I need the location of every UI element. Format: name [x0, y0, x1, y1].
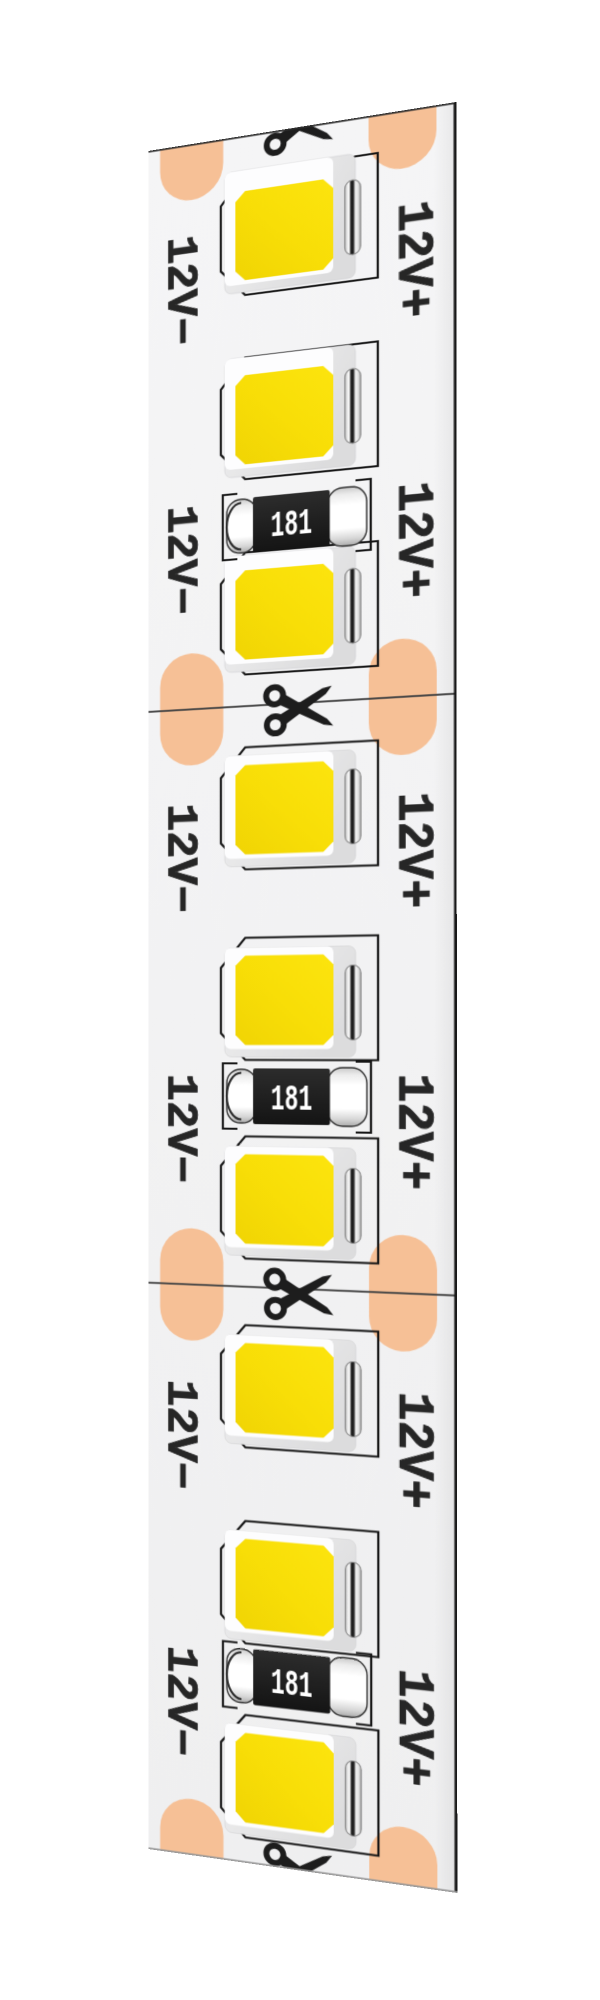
svg-text:181: 181 [271, 503, 312, 549]
svg-text:12V−: 12V− [155, 1074, 204, 1184]
svg-text:12V+: 12V+ [384, 1666, 442, 1789]
svg-text:12V+: 12V+ [384, 1073, 442, 1190]
svg-text:12V−: 12V− [155, 233, 204, 349]
svg-text:181: 181 [271, 1079, 313, 1122]
svg-text:12V+: 12V+ [384, 1390, 442, 1511]
svg-text:12V+: 12V+ [383, 197, 440, 321]
svg-text:12V+: 12V+ [383, 791, 441, 909]
svg-text:12V−: 12V− [155, 503, 204, 616]
svg-text:12V−: 12V− [155, 802, 204, 913]
svg-text:12V+: 12V+ [383, 479, 440, 600]
svg-text:12V−: 12V− [155, 1643, 204, 1758]
svg-text:181: 181 [271, 1662, 313, 1709]
svg-text:12V−: 12V− [155, 1378, 204, 1491]
